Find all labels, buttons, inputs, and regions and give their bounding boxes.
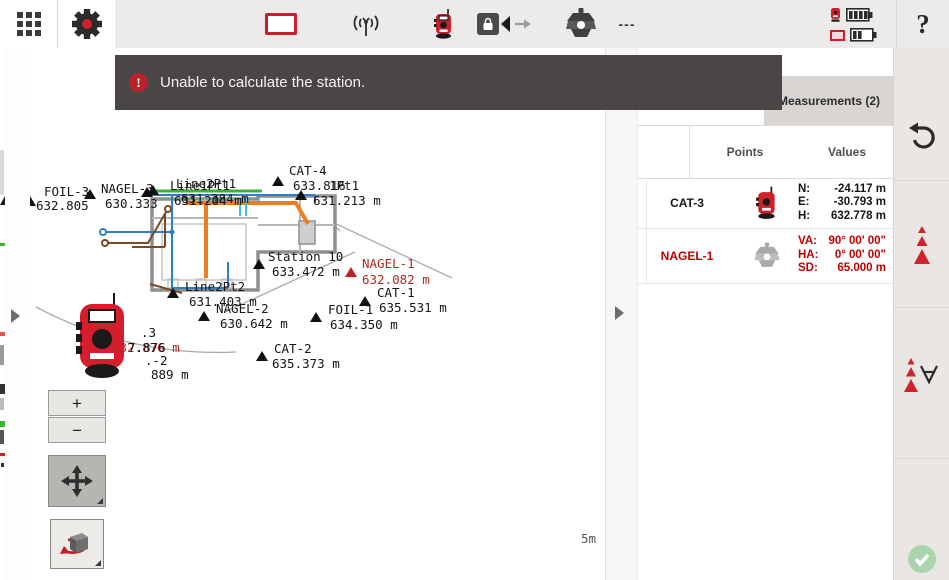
- map-point-label: 633.472 m: [272, 264, 340, 279]
- prism-icon: [563, 8, 599, 40]
- table-row-cat3[interactable]: CAT-3 N:-24.117 m E:-30.793 m H:632.778 …: [638, 178, 894, 229]
- map-point-marker: [256, 351, 268, 361]
- triangle-check-icon: [901, 354, 943, 402]
- station-marker-icon: [76, 293, 124, 378]
- top-toolbar: ---: [0, 0, 949, 48]
- map-point-label: Line2Pt1: [176, 176, 236, 191]
- tab-measurements[interactable]: Measurements (2): [764, 76, 894, 125]
- measurements-panel: Measurements (2) Points Values CAT-3: [637, 48, 894, 580]
- status-placeholder: ---: [605, 0, 649, 48]
- help-button[interactable]: ?: [897, 0, 949, 48]
- right-expander-arrow-icon[interactable]: [615, 306, 624, 320]
- map-point-label: CAT-4: [289, 163, 327, 178]
- table-header: Points Values: [638, 125, 894, 179]
- map-point-label: Line2Pt2: [185, 279, 245, 294]
- map-point-label: 632.805: [36, 198, 89, 213]
- battery-full-icon: [846, 8, 874, 22]
- battery-half-icon: [850, 28, 878, 42]
- map-point-marker: [310, 312, 322, 322]
- total-station-icon: [755, 186, 779, 220]
- map-point-label: 635.373 m: [272, 356, 340, 371]
- check-circle-icon: [906, 543, 938, 575]
- status-dashes: ---: [619, 16, 636, 32]
- rotate-3d-button[interactable]: [50, 519, 104, 569]
- antenna-signal-icon: [351, 10, 381, 38]
- display-mode-button[interactable]: [255, 0, 307, 48]
- map-point-label: 631.403 m: [189, 294, 257, 309]
- map-scale: 5m: [581, 531, 606, 546]
- error-banner[interactable]: ! Unable to calculate the station.: [115, 55, 782, 110]
- map-point-label: .3: [141, 325, 156, 340]
- radio-connection-button[interactable]: [340, 0, 392, 48]
- total-station-icon: [433, 9, 455, 39]
- camera-view-button[interactable]: [473, 0, 539, 48]
- controller-glyph-icon: [830, 30, 845, 41]
- measure-sequence-button[interactable]: [894, 220, 949, 276]
- tool-flyout-corner: [97, 498, 103, 504]
- gear-icon: [69, 6, 105, 42]
- map-point-label: 630.642 m: [220, 316, 288, 331]
- zoom-in-button[interactable]: +: [48, 390, 106, 416]
- pan-arrows-icon: [60, 464, 94, 498]
- column-values: Values: [806, 126, 888, 178]
- map-point-marker: [198, 311, 210, 321]
- map-point-label: NAGEL-1: [362, 256, 415, 271]
- prism-icon: [752, 242, 782, 270]
- error-text: Unable to calculate the station.: [160, 74, 365, 91]
- instrument-battery-icon: [830, 6, 841, 23]
- map-point-label: 635.531 m: [379, 300, 447, 315]
- target-button[interactable]: [555, 0, 607, 48]
- triangle-stack-icon: [907, 224, 937, 272]
- scale-label: 5m: [581, 531, 596, 546]
- screen-frame-icon: [265, 13, 297, 35]
- apps-menu-button[interactable]: [0, 0, 57, 48]
- map-point-label: FOIL-3: [44, 184, 89, 199]
- zoom-out-button[interactable]: −: [48, 417, 106, 443]
- auto-measure-button[interactable]: [894, 350, 949, 406]
- table-row-nagel1[interactable]: NAGEL-1 VA:90° 00' 00" HA:0° 00' 00" SD:…: [638, 228, 894, 284]
- column-points: Points: [690, 126, 800, 178]
- error-icon: !: [129, 73, 148, 92]
- map-point-label: Station 10: [268, 249, 343, 264]
- point-values: N:-24.117 m E:-30.793 m H:632.778 m: [798, 183, 894, 224]
- map-point-label: 634.350 m: [330, 317, 398, 332]
- map-point-marker: [345, 267, 357, 277]
- tool-flyout-corner: [95, 560, 101, 566]
- map-point-label: FOIL-1: [328, 302, 373, 317]
- map-point-marker: [272, 176, 284, 186]
- help-question-icon: ?: [916, 9, 930, 40]
- left-expander-arrow-icon[interactable]: [11, 309, 20, 323]
- pan-tool-button[interactable]: [48, 455, 106, 507]
- point-name: CAT-3: [638, 196, 736, 210]
- camera-lock-icon: [477, 11, 535, 37]
- app-window: 5m FOIL-3632.805NAGEL-3630.333Line1Pt163…: [0, 0, 949, 580]
- map-point-label: 1Pt1: [329, 178, 359, 193]
- rotate-cube-icon: [58, 527, 96, 561]
- instrument-button[interactable]: [418, 0, 470, 48]
- undo-button[interactable]: [894, 106, 949, 164]
- confirm-button[interactable]: [894, 531, 949, 580]
- action-sidebar: [893, 48, 949, 580]
- grid-menu-icon: [16, 11, 42, 37]
- map-point-label: 630.333: [105, 196, 158, 211]
- map-point-label: .-2: [145, 353, 168, 368]
- point-name: NAGEL-1: [638, 249, 736, 263]
- point-values: VA:90° 00' 00" HA:0° 00' 00" SD:65.000 m: [798, 235, 894, 276]
- map-point-label: 631.213 m: [313, 193, 381, 208]
- map-point-label: CAT-1: [377, 285, 415, 300]
- battery-status-group[interactable]: [830, 0, 892, 48]
- settings-button[interactable]: [58, 0, 115, 48]
- map-point-label: 631.384 m: [181, 191, 249, 206]
- map-point-label: CAT-2: [274, 341, 312, 356]
- undo-arrow-icon: [906, 121, 938, 149]
- map-point-label: 889 m: [151, 367, 189, 382]
